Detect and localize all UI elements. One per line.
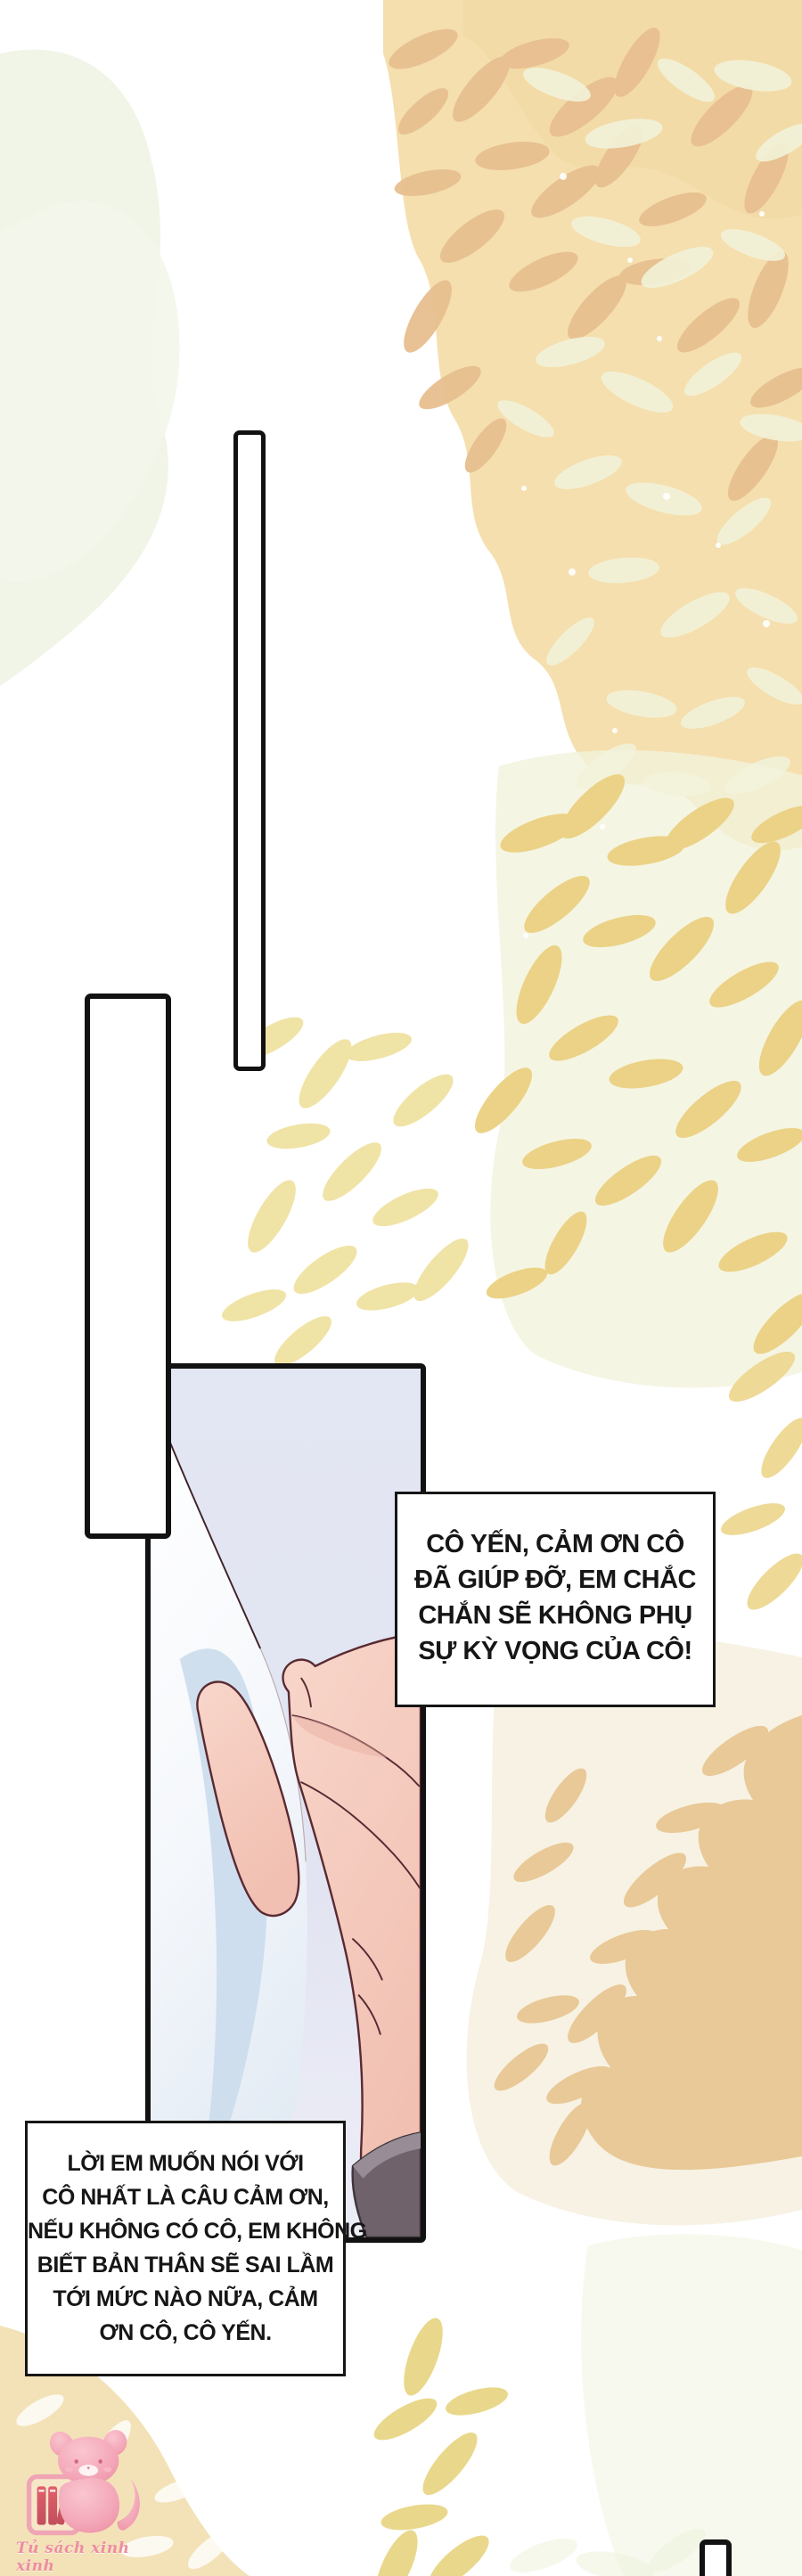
comic-page: CÔ YẾN, CẢM ƠN CÔ ĐÃ GIÚP ĐỠ, EM CHẮC CH…	[0, 0, 802, 2576]
hand-holding-paper-illustration	[151, 1369, 421, 2237]
bubble-line: BIẾT BẢN THÂN SẼ SAI LẦM	[28, 2248, 343, 2282]
panel-divider-bar-1	[233, 430, 266, 1071]
bubble-line: SỰ KỲ VỌNG CỦA CÔ!	[397, 1633, 713, 1669]
panel-divider-bar-2	[85, 994, 171, 1539]
bubble-line: TỚI MỨC NÀO NỮA, CẢM	[28, 2282, 343, 2316]
speech-bubble-1: CÔ YẾN, CẢM ƠN CÔ ĐÃ GIÚP ĐỠ, EM CHẮC CH…	[395, 1492, 716, 1707]
bubble-line: CHẮN SẼ KHÔNG PHỤ	[397, 1598, 713, 1633]
speech-bubble-1-text: CÔ YẾN, CẢM ƠN CÔ ĐÃ GIÚP ĐỠ, EM CHẮC CH…	[397, 1494, 713, 1669]
bubble-line: CÔ YẾN, CẢM ƠN CÔ	[397, 1526, 713, 1562]
bubble-line: LỜI EM MUỐN NÓI VỚI	[28, 2147, 343, 2180]
bubble-line: NẾU KHÔNG CÓ CÔ, EM KHÔNG	[28, 2214, 343, 2248]
panel-divider-bar-3	[700, 2539, 732, 2576]
speech-bubble-2: LỜI EM MUỐN NÓI VỚI CÔ NHẤT LÀ CÂU CẢM Ơ…	[25, 2121, 346, 2376]
cat-tail	[118, 2478, 140, 2530]
bubble-line: CÔ NHẤT LÀ CÂU CẢM ƠN,	[28, 2180, 343, 2214]
bubble-line: ĐÃ GIÚP ĐỠ, EM CHẮC	[397, 1562, 713, 1598]
speech-bubble-2-text: LỜI EM MUỐN NÓI VỚI CÔ NHẤT LÀ CÂU CẢM Ơ…	[28, 2123, 343, 2350]
bubble-line: ƠN CÔ, CÔ YẾN.	[28, 2316, 343, 2350]
watermark-text: Tủ sách xinh xinh	[11, 2539, 162, 2575]
comic-panel-hand	[145, 1363, 426, 2243]
pink-cat-bookshelf-logo-icon	[11, 2425, 153, 2538]
publisher-watermark: Tủ sách xinh xinh	[11, 2425, 162, 2575]
